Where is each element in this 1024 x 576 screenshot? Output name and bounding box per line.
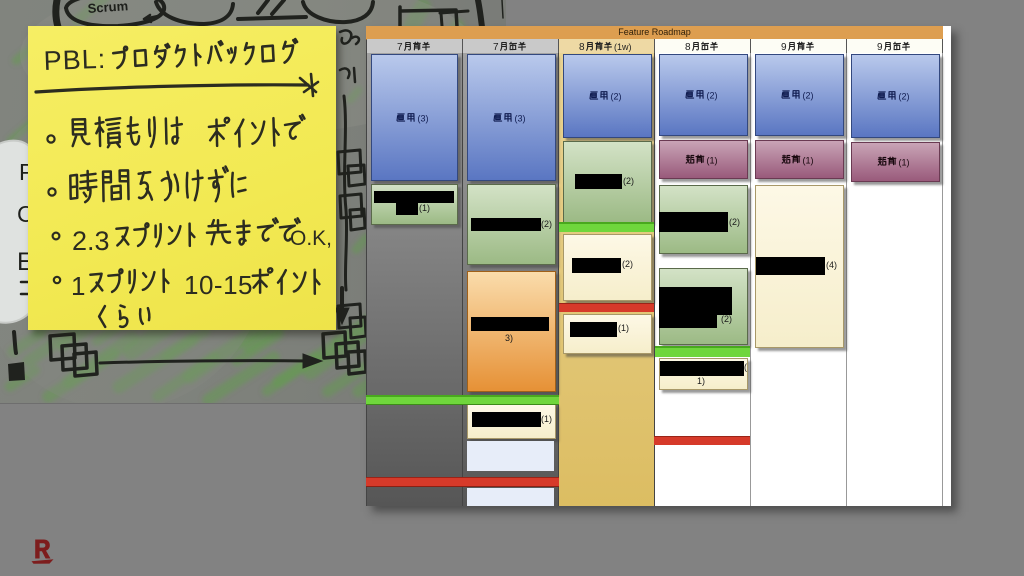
- svg-text:(1): (1): [899, 158, 910, 168]
- svg-text:(1): (1): [707, 156, 718, 166]
- svg-text:(1): (1): [803, 156, 814, 166]
- svg-text:(3): (3): [515, 114, 526, 124]
- svg-text:10-15: 10-15: [184, 270, 253, 300]
- svg-text:Scrum: Scrum: [87, 0, 128, 16]
- svg-text:O.K,: O.K,: [290, 227, 332, 250]
- svg-text:(2): (2): [611, 92, 622, 102]
- svg-text:2.3: 2.3: [72, 226, 110, 256]
- svg-text:8: 8: [579, 42, 585, 53]
- svg-text:(2): (2): [899, 92, 910, 102]
- svg-text:9: 9: [781, 42, 787, 53]
- svg-text:(2): (2): [803, 91, 814, 101]
- svg-text:1: 1: [71, 271, 85, 301]
- svg-text:(1w): (1w): [614, 42, 632, 52]
- svg-text:(2): (2): [707, 91, 718, 101]
- svg-text:(3): (3): [418, 114, 429, 124]
- svg-text:7: 7: [397, 42, 403, 53]
- svg-text:PBL:: PBL:: [43, 44, 107, 76]
- svg-text:8: 8: [685, 42, 691, 53]
- svg-text:7: 7: [493, 42, 499, 53]
- svg-text:9: 9: [877, 42, 883, 53]
